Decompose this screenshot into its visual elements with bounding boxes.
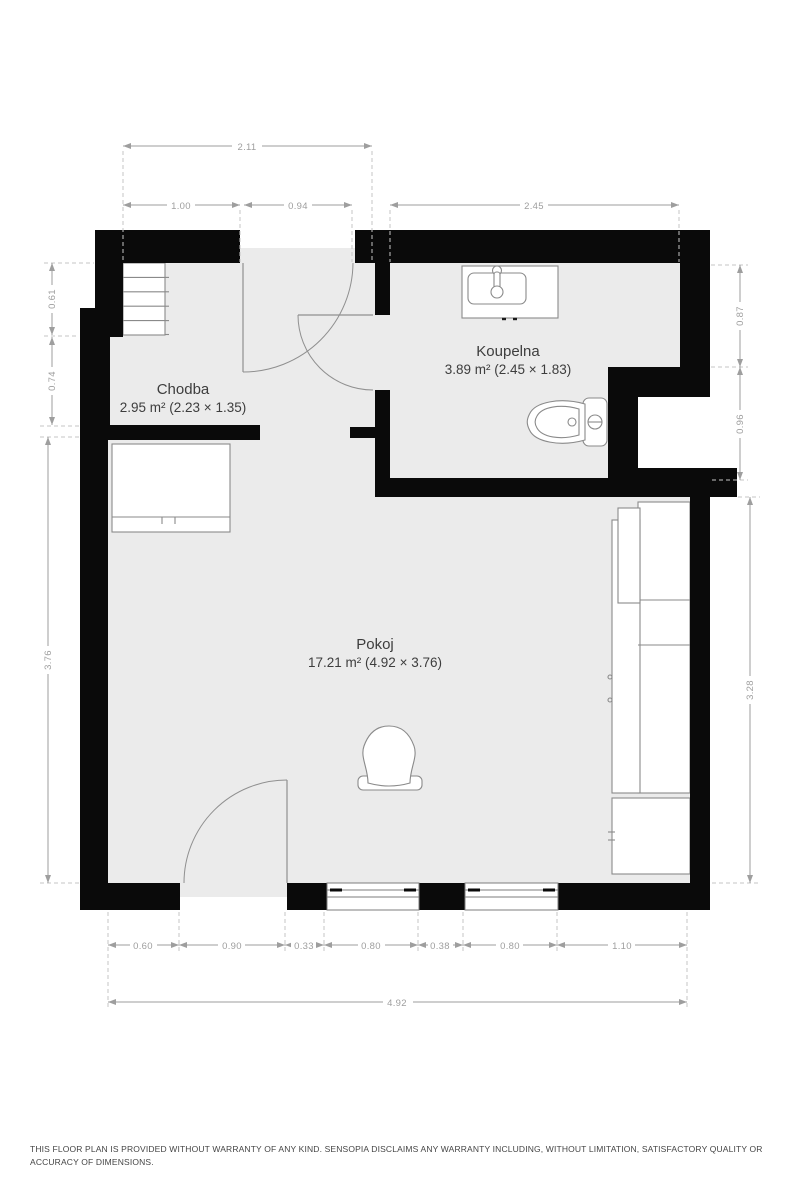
floor-fill: [108, 248, 690, 897]
disclaimer-text: THIS FLOOR PLAN IS PROVIDED WITHOUT WARR…: [30, 1143, 770, 1169]
window-1: [327, 883, 419, 910]
wardrobe: [608, 502, 690, 793]
cabinet-outline: [612, 798, 690, 874]
dim-right-3: 3.28: [745, 680, 756, 700]
dim-bottom-seg-4: 0.80: [361, 941, 381, 952]
dim-bottom-seg-6: 0.80: [500, 941, 520, 952]
wall-left-upper: [95, 230, 123, 310]
faucet-base: [491, 286, 503, 298]
dim-top-seg-2: 0.94: [288, 201, 308, 212]
wall-opening-stub: [350, 427, 375, 438]
wall-left-lower: [80, 425, 108, 910]
wall-left-step: [80, 308, 123, 337]
dim-top-seg-1: 1.00: [171, 201, 191, 212]
room-name-koupelna: Koupelna: [476, 343, 540, 360]
wardrobe-body: [638, 502, 690, 793]
dim-top-total: 2.11: [238, 142, 257, 153]
exterior-door-threshold: [180, 883, 287, 897]
wall-bottom-d: [558, 883, 710, 910]
dim-bottom-seg-3: 0.33: [294, 941, 314, 952]
wall-bottom-c: [419, 883, 465, 910]
room-name-chodba: Chodba: [157, 381, 210, 398]
dim-bottom-seg-7: 1.10: [612, 941, 632, 952]
wall-niche-top: [608, 367, 710, 397]
dim-left-1: 0.61: [47, 289, 58, 309]
wall-bottom-b: [287, 883, 327, 910]
dim-bottom-seg-2: 0.90: [222, 941, 242, 952]
window-2: [465, 883, 558, 910]
wardrobe-top-section: [618, 508, 640, 603]
wall-right-lower: [690, 490, 710, 910]
floor-plan-page: 2.11 1.00 0.94 2.45 0.61 0.74 3.76 0.87 …: [0, 0, 800, 1200]
staircase: [123, 263, 169, 335]
sink-vanity: [462, 266, 558, 319]
toilet: [527, 398, 607, 446]
dim-left-2: 0.74: [47, 371, 58, 391]
wall-bath-bottom: [375, 478, 615, 497]
floor-plan: 2.11 1.00 0.94 2.45 0.61 0.74 3.76 0.87 …: [0, 0, 800, 1200]
dim-bottom-seg-1: 0.60: [133, 941, 153, 952]
toilet-flush: [568, 418, 576, 426]
wall-bottom-a: [80, 883, 180, 910]
dim-bottom-total: 4.92: [387, 998, 407, 1009]
dim-left-3: 3.76: [43, 650, 54, 670]
room-area-pokoj: 17.21 m² (4.92 × 3.76): [308, 655, 442, 670]
dim-right-1: 0.87: [735, 306, 746, 326]
hallway-counter: [112, 444, 230, 532]
wall-top-right: [355, 230, 710, 263]
wall-bath-left-upper: [375, 263, 390, 315]
staircase-outline: [123, 263, 165, 335]
room-area-chodba: 2.95 m² (2.23 × 1.35): [120, 400, 246, 415]
dim-top-seg-3: 2.45: [524, 201, 544, 212]
counter-outline: [112, 444, 230, 532]
room-area-koupelna: 3.89 m² (2.45 × 1.83): [445, 362, 571, 377]
room-name-pokoj: Pokoj: [356, 636, 394, 653]
wall-left-mid: [80, 337, 110, 427]
armchair-seat: [363, 726, 415, 786]
dim-right-2: 0.96: [735, 414, 746, 434]
dim-bottom-seg-5: 0.38: [430, 941, 450, 952]
wall-niche-bottom: [608, 468, 737, 497]
entry-threshold: [240, 248, 355, 263]
wall-niche-left: [608, 397, 638, 478]
cabinet: [608, 798, 690, 874]
